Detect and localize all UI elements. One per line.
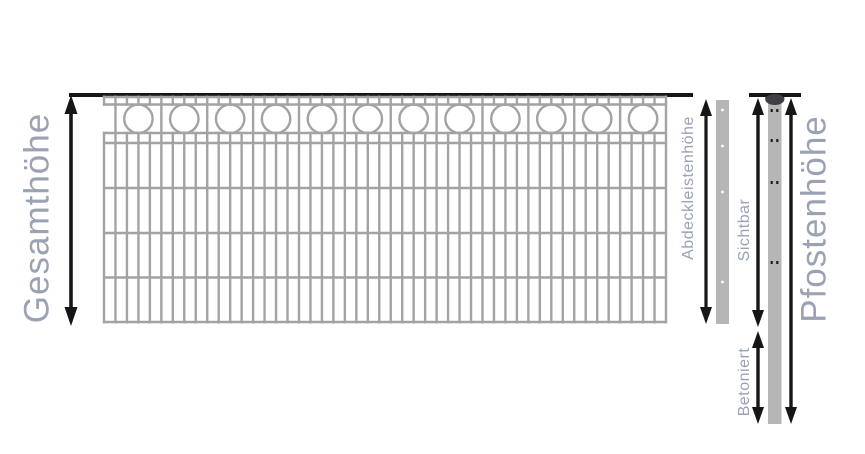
betoniert-arrow	[752, 331, 764, 424]
gesamthoehe-label: Gesamthöhe	[20, 113, 55, 323]
abdeckleistenhoehe-arrow	[700, 99, 712, 324]
gesamthoehe-arrow	[65, 95, 78, 326]
fence-measurement-diagram: Gesamthöhe Abdeckleistenhöhe Sichtbar Be…	[0, 0, 865, 454]
abdeckleistenhoehe-label: Abdeckleistenhöhe	[681, 116, 697, 260]
fence-post	[768, 99, 782, 424]
fence-panel	[103, 96, 667, 324]
betoniert-label: Betoniert	[737, 348, 753, 417]
pfostenhoehe-label: Pfostenhöhe	[797, 115, 832, 323]
cover-strip	[716, 100, 729, 324]
post-cap	[765, 94, 784, 105]
sichtbar-label: Sichtbar	[737, 199, 753, 262]
sichtbar-arrow	[752, 98, 764, 327]
